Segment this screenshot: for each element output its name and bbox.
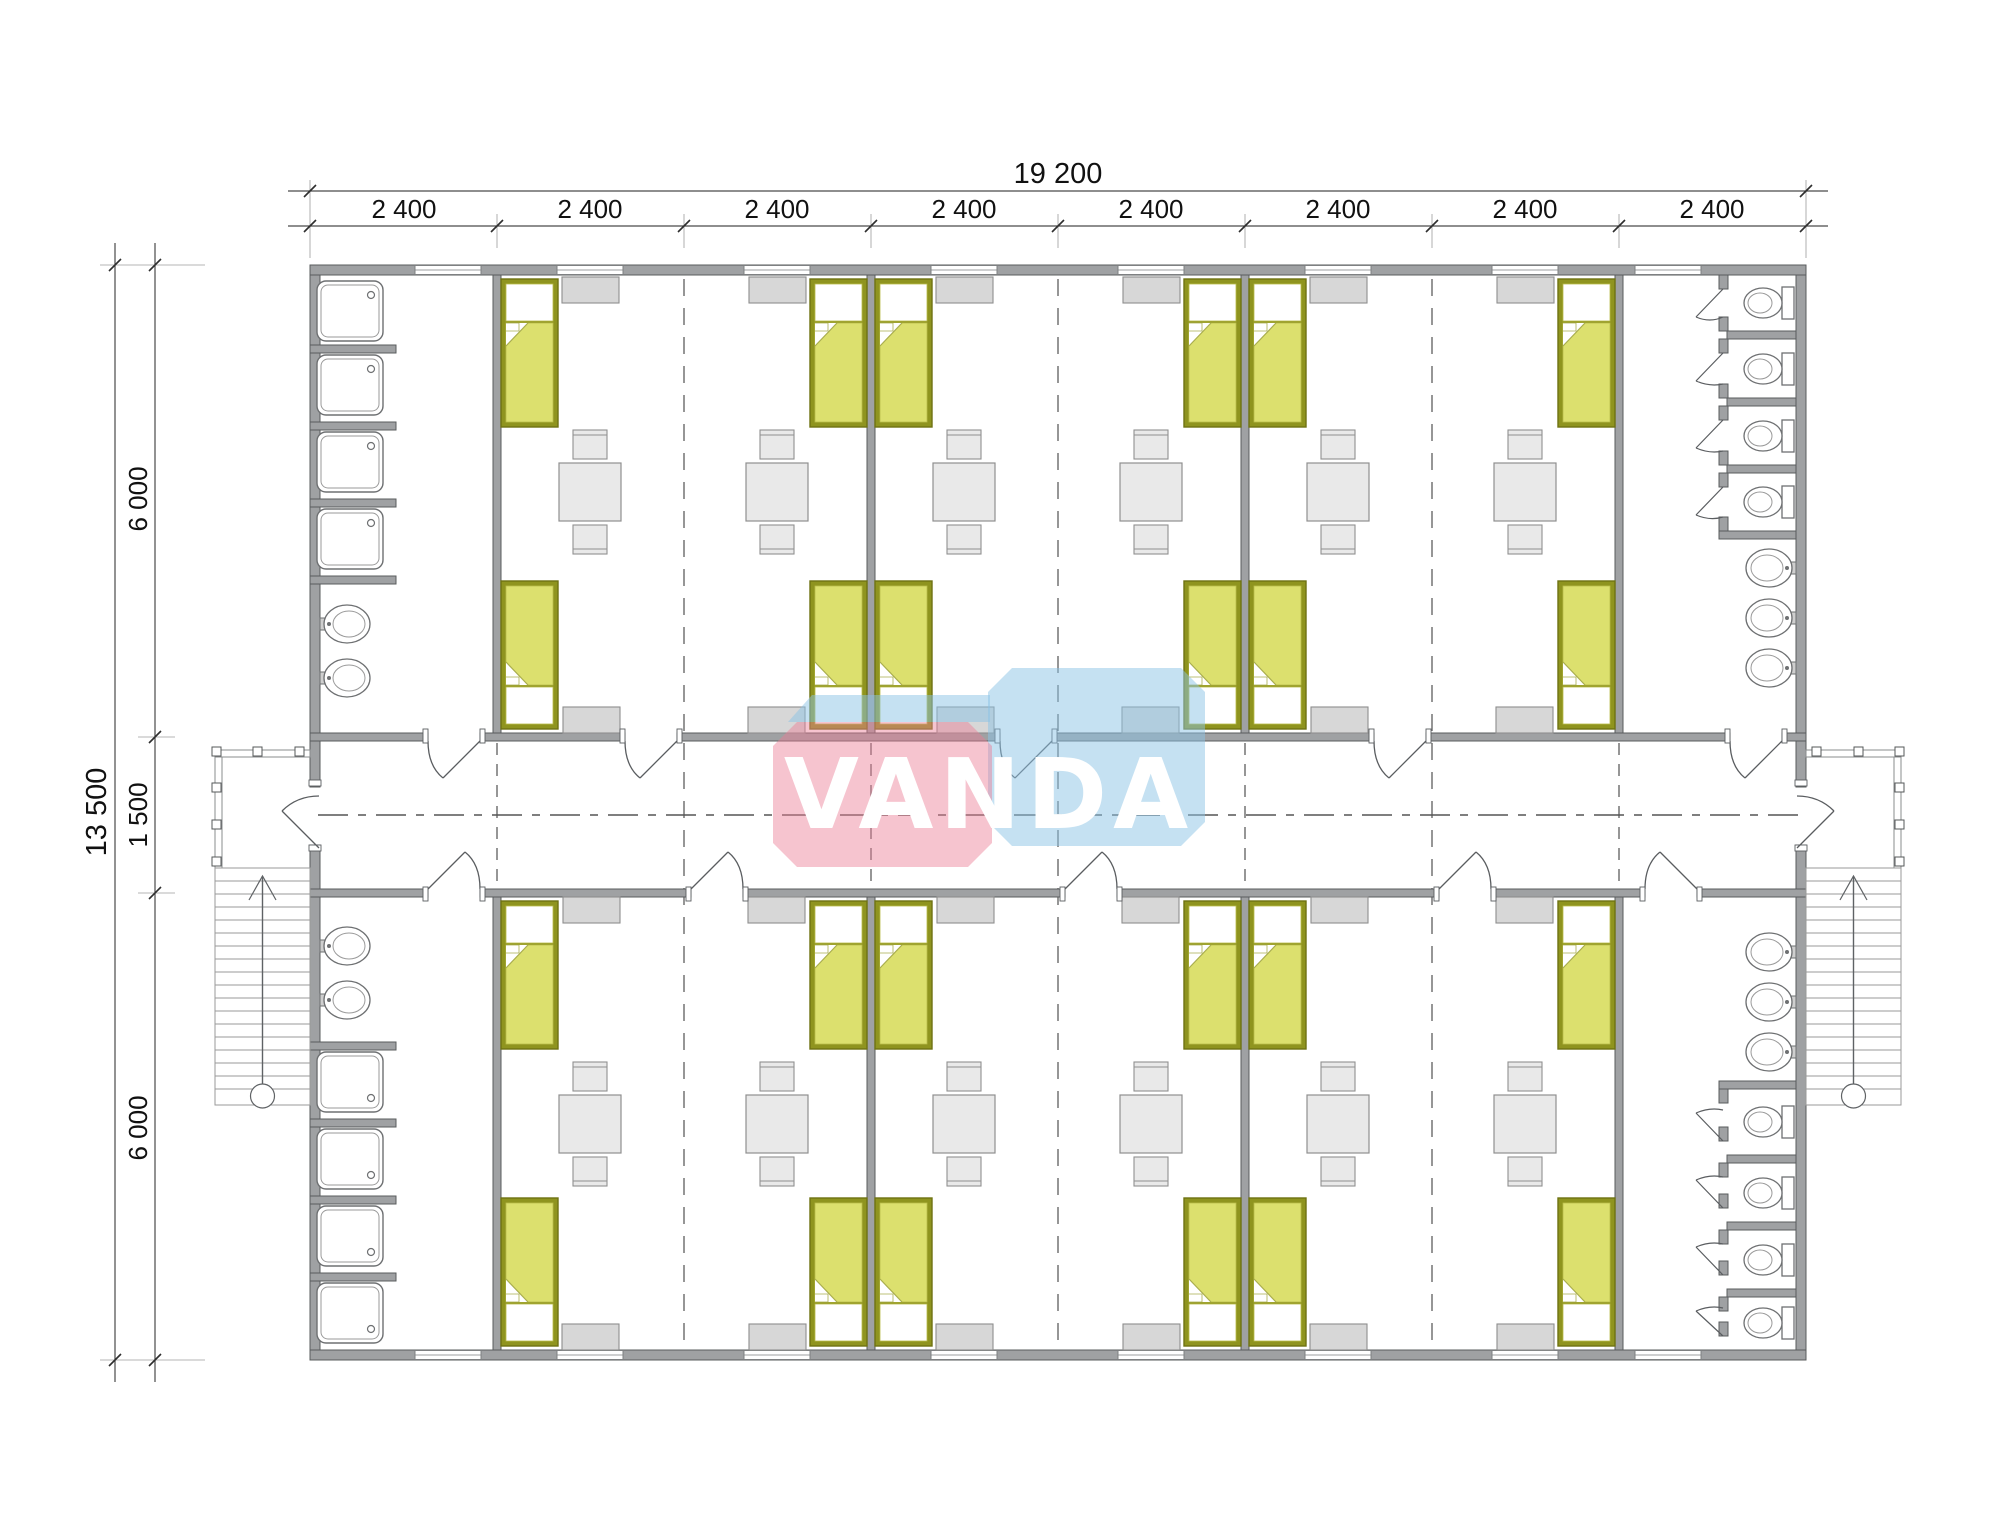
bed [1184,279,1241,427]
dim-segment-6000-top: 6 000 [123,466,153,531]
room-door [1369,729,1431,778]
table-chairs [933,1062,995,1186]
cabinet [562,1324,619,1350]
bed [875,901,932,1049]
table-chairs [559,430,621,554]
toilet [1744,353,1794,385]
table-chairs [746,430,808,554]
bed [1558,279,1615,427]
table-chairs [933,430,995,554]
room-door [1434,852,1496,901]
cabinet [1496,707,1553,733]
cabinet [1497,1324,1554,1350]
cabinet [1122,897,1179,923]
floor-plan-drawing: 19 200 2 400 2 400 2 400 2 400 2 400 2 4… [0,0,2000,1539]
logo-blue-strip [788,695,990,722]
stairs-left [215,868,310,1108]
dim-segment-6000-bottom: 6 000 [123,1095,153,1160]
shower-tray [317,1129,383,1189]
stall-door [1696,487,1723,519]
cabinet [562,277,619,303]
toilet [1744,486,1794,518]
sink [1746,599,1796,637]
bed [501,1198,558,1346]
room-door [423,729,485,778]
table-chairs [1494,430,1556,554]
toilet [1744,1244,1794,1276]
bed [1558,901,1615,1049]
watermark-logo: VANDA [773,668,1205,867]
stall-door [1696,353,1723,385]
sink [320,981,370,1019]
showers [317,281,383,1343]
shower-tray [317,1283,383,1343]
sink [1746,933,1796,971]
cabinet [937,897,994,923]
cabinet [749,1324,806,1350]
dim-segment-1500: 1 500 [123,782,153,847]
entrance-door-left [282,780,321,851]
room-door [1725,729,1787,778]
watermark-text: VANDA [784,738,1194,851]
dim-module-label-5: 2 400 [1118,194,1183,224]
bed [810,1198,867,1346]
room-door [686,852,748,901]
dim-module-label-2: 2 400 [557,194,622,224]
table-chairs [746,1062,808,1186]
bed [810,901,867,1049]
toilet [1744,287,1794,319]
dim-module-label-3: 2 400 [744,194,809,224]
bed [1249,901,1306,1049]
bed [501,279,558,427]
room-door [1640,852,1702,901]
bed [1558,581,1615,729]
cabinet [749,277,806,303]
toilet [1744,1307,1794,1339]
bed [1249,581,1306,729]
stall-door [1696,1109,1723,1141]
table-chairs [1120,1062,1182,1186]
cabinet [1123,277,1180,303]
sink [1746,1033,1796,1071]
sink [320,659,370,697]
cabinet [936,277,993,303]
table-chairs [559,1062,621,1186]
shower-tray [317,1206,383,1266]
bed [875,279,932,427]
table-chairs [1494,1062,1556,1186]
entrance-door-right [1795,780,1834,851]
stall-doors [1696,289,1723,1336]
dim-total-width-label: 19 200 [1014,158,1103,190]
cabinet [1311,707,1368,733]
toilet [1744,420,1794,452]
shower-tray [317,281,383,341]
room-door [620,729,682,778]
cabinet [748,897,805,923]
table-chairs [1120,430,1182,554]
room-door [423,852,485,901]
stairs-right [1806,868,1901,1108]
cabinet [1496,897,1553,923]
cabinet [1311,897,1368,923]
sink [320,605,370,643]
sink [1746,549,1796,587]
shower-tray [317,432,383,492]
cabinet [1123,1324,1180,1350]
toilets [1744,287,1794,1339]
porch-left [212,747,310,868]
toilet [1744,1177,1794,1209]
sink [1746,649,1796,687]
bed [810,279,867,427]
floor-plan-page: 19 200 2 400 2 400 2 400 2 400 2 400 2 4… [0,0,2000,1539]
bed [1249,1198,1306,1346]
table-chairs [1307,430,1369,554]
stall-door [1696,289,1723,320]
shower-tray [317,509,383,569]
table-chairs [1307,1062,1369,1186]
shower-tray [317,355,383,415]
bed [1184,1198,1241,1346]
bed [1184,901,1241,1049]
cabinet [563,707,620,733]
dim-module-label-4: 2 400 [931,194,996,224]
shower-tray [317,1052,383,1112]
cabinet [563,897,620,923]
bed [1249,279,1306,427]
cabinet [1310,1324,1367,1350]
sink [320,927,370,965]
porch-right [1806,747,1904,868]
cabinet [936,1324,993,1350]
stall-door [1696,1176,1723,1208]
dim-total-height-label: 13 500 [81,768,113,857]
dim-module-label-6: 2 400 [1305,194,1370,224]
cabinet [1310,277,1367,303]
dim-module-label-7: 2 400 [1492,194,1557,224]
sink [1746,983,1796,1021]
dim-module-label-1: 2 400 [371,194,436,224]
bed [875,1198,932,1346]
bed [501,901,558,1049]
bed [501,581,558,729]
cabinet [1497,277,1554,303]
stall-door [1696,420,1723,452]
stall-door [1696,1243,1723,1275]
bed [1558,1198,1615,1346]
room-door [1060,852,1122,901]
dim-module-label-8: 2 400 [1679,194,1744,224]
toilet [1744,1106,1794,1138]
